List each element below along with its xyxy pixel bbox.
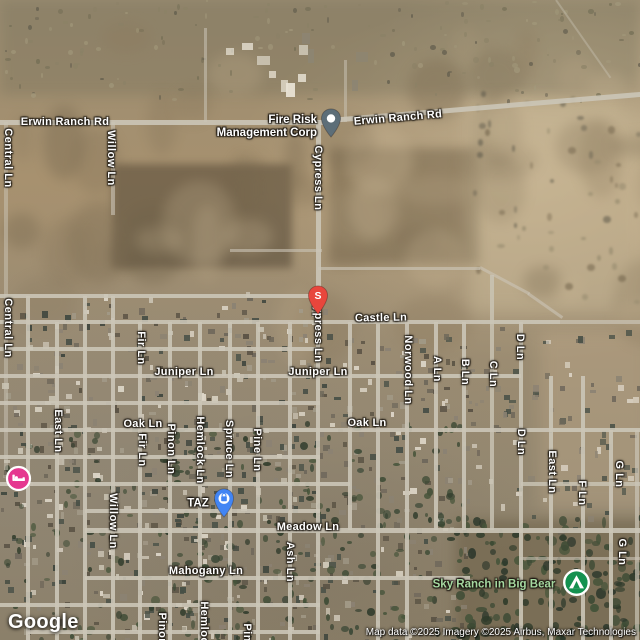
street-label-g-ln: G Ln [616, 538, 628, 565]
road-segment [0, 603, 320, 607]
street-label-ash-ln: Ash Ln [284, 542, 296, 582]
street-label-mahogany-ln: Mahogany Ln [169, 565, 243, 577]
road-segment [376, 322, 380, 640]
street-label-c-ln: C Ln [487, 361, 499, 387]
street-label-east-ln: East Ln [52, 409, 64, 452]
road-segment [0, 482, 350, 486]
street-label-juniper-ln: Juniper Ln [288, 366, 347, 378]
road-segment [0, 455, 320, 459]
road-segment [85, 576, 470, 580]
street-label-fir-ln: Fir Ln [135, 331, 147, 365]
terrain-dark-field [112, 164, 292, 268]
road-segment [138, 322, 142, 640]
street-label-g-ln: G Ln [613, 460, 625, 487]
road-segment [635, 430, 639, 640]
road-segment [0, 347, 320, 351]
poi-marker-lodging-icon[interactable] [5, 465, 32, 497]
street-label-b-ln: B Ln [459, 359, 471, 385]
road-segment [479, 266, 530, 295]
road-segment [344, 60, 347, 122]
map-canvas[interactable]: Erwin Ranch RdErwin Ranch RdCentral LnWi… [0, 0, 640, 640]
street-label-f-ln: F Ln [576, 480, 588, 505]
street-label-central-ln: Central Ln [2, 298, 14, 357]
road-segment [555, 0, 611, 78]
road-segment [519, 322, 523, 640]
street-label-d-ln: D Ln [515, 429, 527, 455]
poi-marker-s-stop-pin[interactable]: S [307, 285, 329, 320]
poi-label-sky-ranch-in-big-bear[interactable]: Sky Ranch in Big Bear [433, 579, 556, 592]
street-label-norwood-ln: Norwood Ln [402, 335, 414, 404]
street-label-pine-ln: Pine Ln [241, 623, 253, 640]
terrain-scrub [0, 0, 640, 95]
street-label-d-ln: D Ln [514, 334, 526, 360]
street-label-fir-ln: Fir Ln [136, 433, 148, 467]
street-label-oak-ln: Oak Ln [347, 417, 386, 429]
road-segment [0, 428, 640, 432]
road-segment [256, 322, 260, 640]
road-segment [230, 249, 322, 252]
street-label-a-ln: A Ln [431, 356, 443, 382]
road-segment [549, 376, 553, 640]
street-label-pine-ln: Pine Ln [251, 428, 263, 471]
street-label-willow-ln: Willow Ln [107, 493, 119, 549]
poi-marker-fire-risk-management-corp-pin[interactable] [320, 108, 342, 143]
street-label-spruce-ln: Spruce Ln [223, 420, 235, 478]
street-label-erwin-ranch-rd: Erwin Ranch Rd [21, 116, 110, 128]
road-segment [560, 320, 640, 324]
terrain-dark-field-2 [330, 148, 480, 264]
poi-label-taz[interactable]: TAZ [187, 498, 209, 511]
road-segment [462, 322, 466, 530]
street-label-meadow-ln: Meadow Ln [277, 521, 340, 533]
road-segment [434, 322, 438, 530]
street-label-cypress-ln: Cypress Ln [312, 146, 324, 211]
street-label-juniper-ln: Juniper Ln [154, 366, 213, 378]
poi-marker-taz-pin[interactable] [213, 488, 235, 523]
street-label-pinon-ln: Pinon Ln [165, 423, 177, 474]
road-segment [0, 320, 560, 324]
google-logo[interactable]: Google [8, 611, 79, 634]
road-segment [204, 28, 207, 122]
road-segment [318, 267, 480, 270]
street-label-pinon-ln: Pinon Ln [156, 612, 168, 640]
poi-label-fire-risk-management-corp[interactable]: Fire Risk Management Corp [217, 114, 317, 140]
street-label-central-ln: Central Ln [2, 128, 14, 187]
street-label-hemlock-ln: Hemlock Ln [198, 601, 210, 640]
road-segment [85, 528, 640, 533]
road-segment [55, 322, 59, 640]
road-segment [0, 401, 320, 405]
road-segment [228, 322, 232, 640]
map-attribution: Map data ©2025 Imagery ©2025 Airbus, Max… [366, 627, 636, 638]
street-label-erwin-ranch-rd: Erwin Ranch Rd [353, 108, 442, 128]
street-label-oak-ln: Oak Ln [123, 418, 162, 430]
poi-marker-sky-ranch-in-big-bear-icon[interactable] [562, 568, 591, 602]
road-segment [0, 294, 320, 298]
road-segment [527, 292, 563, 319]
street-label-willow-ln: Willow Ln [105, 130, 117, 186]
street-label-castle-ln: Castle Ln [355, 312, 407, 325]
street-label-east-ln: East Ln [546, 450, 558, 493]
svg-text:S: S [315, 291, 322, 302]
street-label-hemlock-ln: Hemlock Ln [194, 416, 206, 483]
road-segment [490, 275, 494, 530]
